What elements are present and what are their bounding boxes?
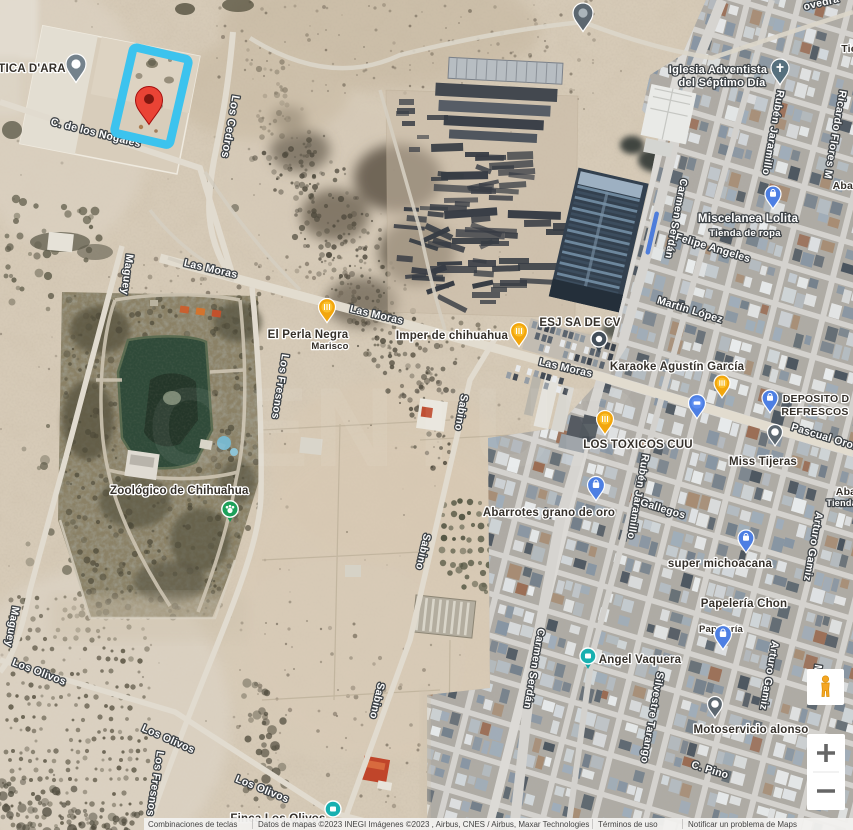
svg-text:Iglesia Adventista: Iglesia Adventista xyxy=(669,64,768,76)
svg-text:Papelería Chon: Papelería Chon xyxy=(701,598,788,610)
svg-text:Combinaciones de teclas: Combinaciones de teclas xyxy=(148,820,237,829)
svg-text:del Séptimo Día: del Séptimo Día xyxy=(678,77,766,89)
svg-text:LOS TOXICOS CUU: LOS TOXICOS CUU xyxy=(583,439,693,451)
svg-text:super michoacana: super michoacana xyxy=(668,558,773,570)
svg-text:Imper de chihuahua: Imper de chihuahua xyxy=(396,330,509,342)
svg-text:Datos de mapas ©2023 INEGI Imá: Datos de mapas ©2023 INEGI Imágenes ©202… xyxy=(258,820,589,829)
svg-text:Tie: Tie xyxy=(841,43,853,55)
svg-text:Zoológico de Chihuahua: Zoológico de Chihuahua xyxy=(110,485,249,497)
svg-text:ESJ SA DE CV: ESJ SA DE CV xyxy=(539,317,620,329)
svg-text:DEPOSITO D: DEPOSITO D xyxy=(783,393,850,405)
svg-text:Marisco: Marisco xyxy=(311,341,348,352)
svg-text:Angel Vaquera: Angel Vaquera xyxy=(599,654,682,666)
svg-text:TICA D'ARA: TICA D'ARA xyxy=(0,63,66,75)
svg-text:Miss Tijeras: Miss Tijeras xyxy=(729,456,797,468)
svg-text:REFRESCOS: REFRESCOS xyxy=(781,406,848,418)
svg-text:Tienda de ropa: Tienda de ropa xyxy=(709,228,781,239)
svg-text:Tienda d: Tienda d xyxy=(826,498,853,508)
svg-text:Abarrotes grano de oro: Abarrotes grano de oro xyxy=(483,507,615,519)
svg-text:Términos de uso: Términos de uso xyxy=(598,820,658,829)
svg-text:Aba: Aba xyxy=(836,486,853,498)
svg-text:Notificar un problema de Maps: Notificar un problema de Maps xyxy=(688,820,797,829)
svg-text:El Perla Negra: El Perla Negra xyxy=(268,329,349,341)
svg-text:Miscelanea Lolita: Miscelanea Lolita xyxy=(698,213,799,225)
svg-text:Abar: Abar xyxy=(833,180,853,192)
svg-text:Karaoke Agustín García: Karaoke Agustín García xyxy=(610,361,745,373)
svg-text:Motoservicio alonso: Motoservicio alonso xyxy=(694,724,809,736)
